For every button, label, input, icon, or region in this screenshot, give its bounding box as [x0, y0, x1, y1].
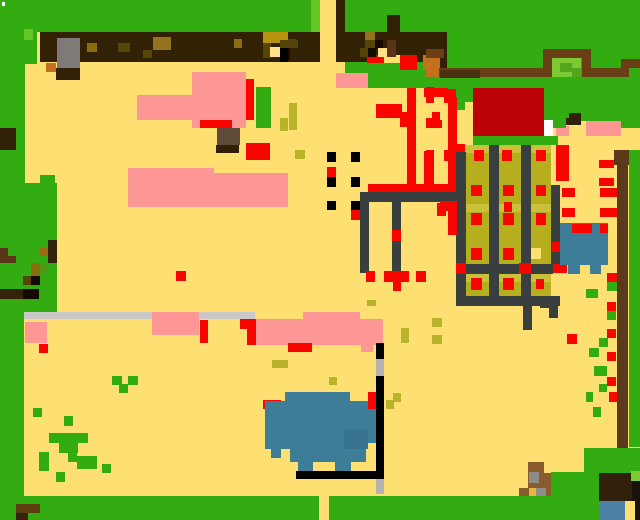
leaf-dot: [589, 348, 599, 357]
band-spot: [365, 32, 375, 40]
berry-dot: [607, 302, 616, 311]
weed: [56, 472, 65, 482]
band-spot: [118, 43, 130, 52]
leaf-dot: [586, 289, 598, 298]
building-pink-2: [128, 168, 214, 207]
red-dot: [40, 346, 48, 352]
red-dash: [600, 208, 617, 217]
berry-dot: [607, 352, 616, 361]
small-hut-window: [529, 472, 539, 483]
crop-berry: [503, 248, 514, 260]
eye-spot: [270, 47, 280, 57]
tree-branch: [23, 276, 31, 285]
red-dash: [572, 224, 592, 233]
pond-small: [590, 265, 601, 274]
leaf-dot: [599, 384, 607, 392]
path-line: [621, 59, 640, 68]
dark-block-left: [0, 128, 16, 150]
olive-dash: [432, 318, 442, 327]
small-hut-window: [536, 488, 546, 496]
leaf-dot: [593, 407, 601, 417]
red-column: [200, 320, 208, 343]
fence: [540, 298, 558, 308]
red-block: [400, 112, 408, 127]
weed: [39, 452, 49, 471]
grass-right-edge: [629, 150, 640, 447]
black-fence: [296, 471, 376, 479]
band-spot: [143, 50, 152, 58]
corner-sand: [625, 501, 635, 520]
crop-berry: [503, 278, 514, 290]
tree-trunk: [617, 165, 628, 448]
red-dash: [434, 120, 442, 128]
leaf-dot: [607, 282, 617, 291]
hut-shadow: [216, 145, 239, 153]
crop-berry: [536, 150, 546, 161]
red-corner: [240, 319, 256, 329]
path-gate: [426, 58, 439, 77]
fence: [456, 264, 553, 274]
red-block: [376, 104, 402, 118]
red-dash: [288, 343, 312, 352]
weed: [64, 416, 73, 426]
red-dot: [416, 271, 426, 282]
bush: [256, 87, 271, 128]
bush-pen-leaf: [572, 68, 581, 77]
crop-berry: [536, 279, 544, 289]
crop-berry: [471, 248, 482, 260]
brown-spot: [387, 40, 396, 57]
red-dot: [384, 271, 409, 282]
fence: [392, 202, 401, 230]
tree-trunk: [614, 150, 629, 165]
building-door: [544, 120, 553, 136]
berry-dot: [609, 392, 617, 402]
pink-patch: [152, 312, 199, 335]
grass-strip: [473, 136, 558, 145]
red-dash: [426, 87, 434, 103]
red-dash: [600, 224, 608, 233]
crop-berry: [502, 150, 512, 161]
pink-patch: [586, 121, 621, 136]
band-spot: [234, 39, 242, 48]
building-accent: [246, 79, 254, 120]
red-dash: [444, 89, 456, 103]
pond-shade: [344, 430, 368, 449]
tree-branch: [31, 263, 40, 276]
grass-left-column: [0, 62, 25, 314]
red-dash: [562, 188, 575, 197]
path-line: [543, 49, 552, 77]
building-pink-band: [256, 319, 383, 345]
small-hut-door: [529, 488, 536, 496]
tree-branch: [31, 276, 40, 285]
grass-bottom-right: [555, 473, 600, 520]
grass-patch: [621, 118, 640, 128]
berry-dot: [607, 329, 616, 338]
band-spot: [87, 43, 97, 52]
white-pixel: [2, 2, 5, 6]
olive-dash: [432, 335, 442, 344]
leaf-dot: [631, 471, 640, 481]
band-spot: [280, 40, 298, 48]
red-column: [448, 201, 457, 235]
path-line: [582, 50, 591, 77]
crop-berry: [536, 185, 546, 196]
game-map[interactable]: [0, 0, 640, 520]
fence-marker: [553, 264, 567, 273]
dark-spot: [368, 48, 376, 57]
brown-dot: [569, 113, 581, 122]
red-dash: [437, 203, 446, 216]
post: [327, 201, 336, 210]
leaf-dot: [607, 311, 616, 320]
olive-dash: [280, 118, 288, 131]
grass-patch: [553, 118, 566, 128]
crop-gap: [531, 248, 541, 259]
pond: [346, 451, 360, 461]
crop-berry: [503, 213, 514, 225]
pond: [285, 392, 350, 401]
gray-path: [24, 312, 255, 319]
pink-patch: [25, 322, 47, 343]
grass-bush-top: [40, 175, 55, 185]
path-line: [591, 68, 629, 77]
red-block: [246, 143, 270, 160]
leaf-dot: [594, 366, 607, 376]
light-grass-strip: [311, 0, 320, 32]
red-column: [556, 145, 569, 181]
grass-top: [37, 0, 311, 32]
path-gap: [319, 496, 329, 520]
crop-berry: [474, 150, 484, 161]
bush-pen-leaf: [560, 63, 572, 72]
building-pink-2: [214, 173, 288, 207]
tree-branch: [8, 256, 16, 263]
red-dash: [600, 188, 617, 197]
grass-left-lower: [0, 314, 24, 496]
red-dot: [393, 282, 401, 291]
post: [351, 201, 360, 210]
red-dot: [327, 167, 336, 177]
crop-berry: [503, 185, 514, 196]
olive-dash: [272, 360, 288, 368]
pink-patch: [361, 345, 373, 352]
weed: [68, 452, 77, 462]
olive-dash: [295, 150, 305, 159]
weed: [102, 464, 111, 473]
small-hut: [519, 488, 529, 496]
crop-berry: [471, 213, 482, 225]
band-spot: [153, 37, 171, 50]
red-corner: [247, 329, 256, 345]
tree-branch: [23, 289, 39, 299]
crop-berry: [471, 185, 482, 196]
leaf-dot: [599, 338, 608, 347]
red-dot: [176, 271, 186, 281]
hut: [217, 128, 240, 145]
weed: [128, 376, 138, 385]
red-dash: [599, 160, 614, 168]
dirt-block: [387, 15, 400, 32]
pond-edge-red: [368, 392, 376, 409]
fence: [360, 192, 369, 273]
fence: [489, 145, 499, 306]
fence-gate: [376, 479, 384, 494]
fence-marker: [392, 230, 401, 241]
tree-leaf: [40, 263, 48, 273]
post: [327, 177, 336, 187]
post: [351, 152, 360, 162]
dark-spot: [280, 48, 288, 62]
pond: [368, 409, 376, 443]
red-dash: [562, 208, 575, 217]
building-pink-band: [303, 312, 360, 319]
building-pink-1-wing: [137, 95, 192, 120]
red-dot: [351, 210, 360, 220]
tree-branch: [0, 248, 8, 263]
path-line: [426, 49, 444, 58]
olive-dash: [367, 300, 376, 306]
fence: [551, 185, 560, 264]
corner-water: [599, 501, 625, 520]
fence: [521, 145, 531, 306]
pink-patch: [336, 73, 368, 88]
fence: [549, 308, 558, 318]
red-dash: [599, 178, 614, 186]
red-column: [407, 88, 416, 187]
grass-right: [544, 88, 640, 121]
red-dot: [567, 334, 577, 344]
tree-branch: [40, 248, 48, 256]
rock: [57, 38, 80, 68]
weed: [77, 456, 97, 469]
building-red-roof: [473, 88, 544, 136]
post: [327, 152, 336, 162]
bottom-left-log: [16, 504, 40, 513]
bottom-left-log: [16, 513, 28, 520]
grass-bottom-right: [584, 448, 640, 473]
light-grass-dot: [24, 29, 33, 40]
fence: [456, 274, 466, 296]
post: [351, 177, 360, 187]
berry-dot: [607, 377, 616, 386]
olive-dash: [289, 103, 297, 130]
fence-gate: [376, 359, 384, 376]
tree-branch: [0, 289, 23, 299]
corner-structure: [599, 473, 632, 501]
band-spot: [360, 48, 368, 57]
crop-berry: [504, 202, 512, 212]
pond-small: [568, 265, 580, 274]
crop-berry: [536, 213, 546, 225]
red-block: [400, 55, 417, 70]
leaf-dot: [586, 392, 593, 402]
fence-marker: [519, 263, 531, 274]
crop-berry: [471, 278, 482, 290]
fence-marker: [456, 263, 466, 274]
fence: [392, 241, 401, 273]
fence: [523, 306, 532, 330]
olive-dash: [329, 377, 337, 385]
path-line: [440, 70, 480, 78]
red-dash: [426, 150, 434, 188]
olive-dash: [393, 393, 401, 402]
band-spot: [280, 32, 288, 40]
rock-shadow: [56, 68, 80, 80]
berry-dot: [607, 273, 617, 282]
tree-branch: [48, 240, 57, 263]
olive-dash: [401, 328, 409, 343]
weed: [119, 384, 128, 393]
weed: [33, 408, 42, 417]
red-dot: [366, 271, 375, 282]
red-dash: [426, 118, 434, 128]
orange-dot: [46, 63, 56, 72]
pond: [271, 448, 281, 458]
building-accent: [200, 120, 232, 128]
fence: [456, 152, 466, 264]
